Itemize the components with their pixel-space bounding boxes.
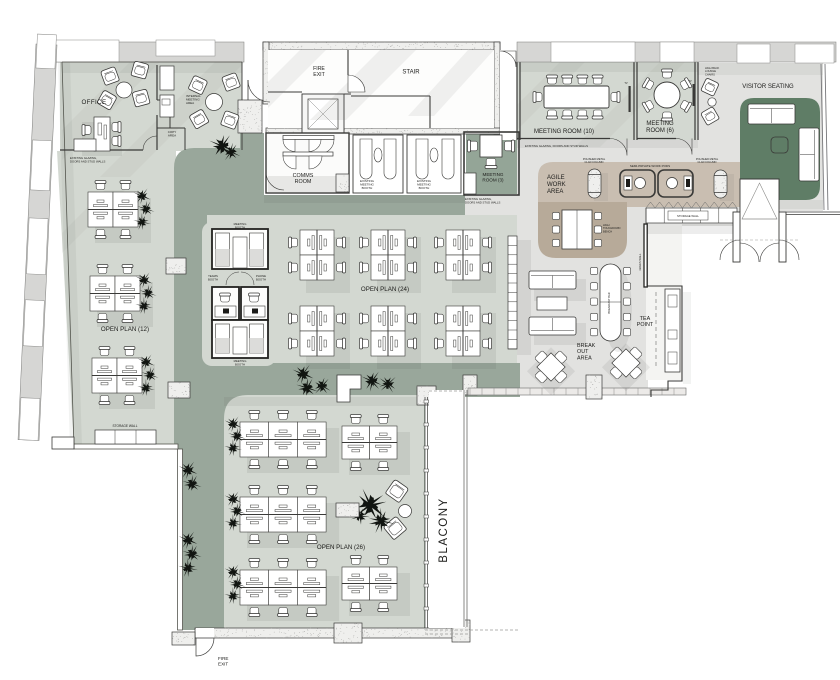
svg-text:AREA: AREA [168,133,176,137]
svg-text:CLAD COLUMN: CLAD COLUMN [698,160,717,164]
svg-text:MEETING ROOM (10): MEETING ROOM (10) [534,129,594,135]
svg-text:OPEN PLAN (12): OPEN PLAN (12) [101,326,149,333]
svg-text:ROOM (3): ROOM (3) [482,177,504,182]
svg-text:COMMS: COMMS [293,173,314,179]
svg-text:BOOTH: BOOTH [235,362,245,366]
svg-text:BREAKFAST BAR: BREAKFAST BAR [607,292,611,313]
svg-text:BOOTH: BOOTH [235,225,245,229]
svg-text:GREEN WALL: GREEN WALL [638,253,642,270]
svg-text:EXISTING GLAZING, DOORS AND ST: EXISTING GLAZING, DOORS AND STUD WALLS [525,144,588,148]
svg-text:OPEN PLAN (24): OPEN PLAN (24) [361,286,409,293]
svg-text:BLACONY: BLACONY [438,497,450,562]
svg-text:DOORS AND STUD WALLS: DOORS AND STUD WALLS [70,159,105,163]
svg-text:EXIT: EXIT [313,72,325,78]
svg-text:BREAK: BREAK [577,343,596,349]
svg-text:POINT: POINT [637,322,654,328]
svg-text:OUT: OUT [577,349,589,355]
svg-text:WORK: WORK [547,182,566,188]
svg-text:STORAGE WALL: STORAGE WALL [677,214,699,218]
svg-text:CLAD COLUMN: CLAD COLUMN [585,160,604,164]
svg-text:TV: TV [624,81,628,85]
svg-text:AGILE: AGILE [547,175,565,181]
svg-text:ROOM: ROOM [295,179,312,185]
svg-text:BENCH: BENCH [603,229,612,233]
svg-text:AREA: AREA [186,101,194,105]
svg-text:SEMI-PRIVATE WORK PODS: SEMI-PRIVATE WORK PODS [630,164,670,168]
svg-text:TEA: TEA [640,316,651,322]
svg-text:STAIR: STAIR [402,70,420,76]
svg-text:BOOTH: BOOTH [419,186,430,190]
svg-text:EXIT: EXIT [218,661,228,666]
svg-text:FIRE: FIRE [218,656,228,661]
svg-text:OFFICE: OFFICE [81,99,106,106]
svg-text:BOOTH: BOOTH [208,277,218,281]
svg-text:STORAGE WALL: STORAGE WALL [113,424,138,428]
svg-text:AREA: AREA [577,355,592,361]
svg-text:DOORS AND STUD WALLS: DOORS AND STUD WALLS [465,200,500,204]
svg-text:MEETING: MEETING [646,121,674,127]
svg-text:ROOM (6): ROOM (6) [646,128,674,134]
svg-text:BOOTH: BOOTH [256,277,266,281]
svg-text:AREA: AREA [547,189,563,195]
svg-text:BOOTH: BOOTH [362,186,373,190]
svg-text:TV: TV [688,79,692,83]
svg-text:VISITOR SEATING: VISITOR SEATING [742,84,794,90]
svg-text:CHAIRS: CHAIRS [705,72,715,76]
svg-text:MEETING: MEETING [483,172,504,177]
svg-text:OPEN PLAN (26): OPEN PLAN (26) [317,544,365,551]
